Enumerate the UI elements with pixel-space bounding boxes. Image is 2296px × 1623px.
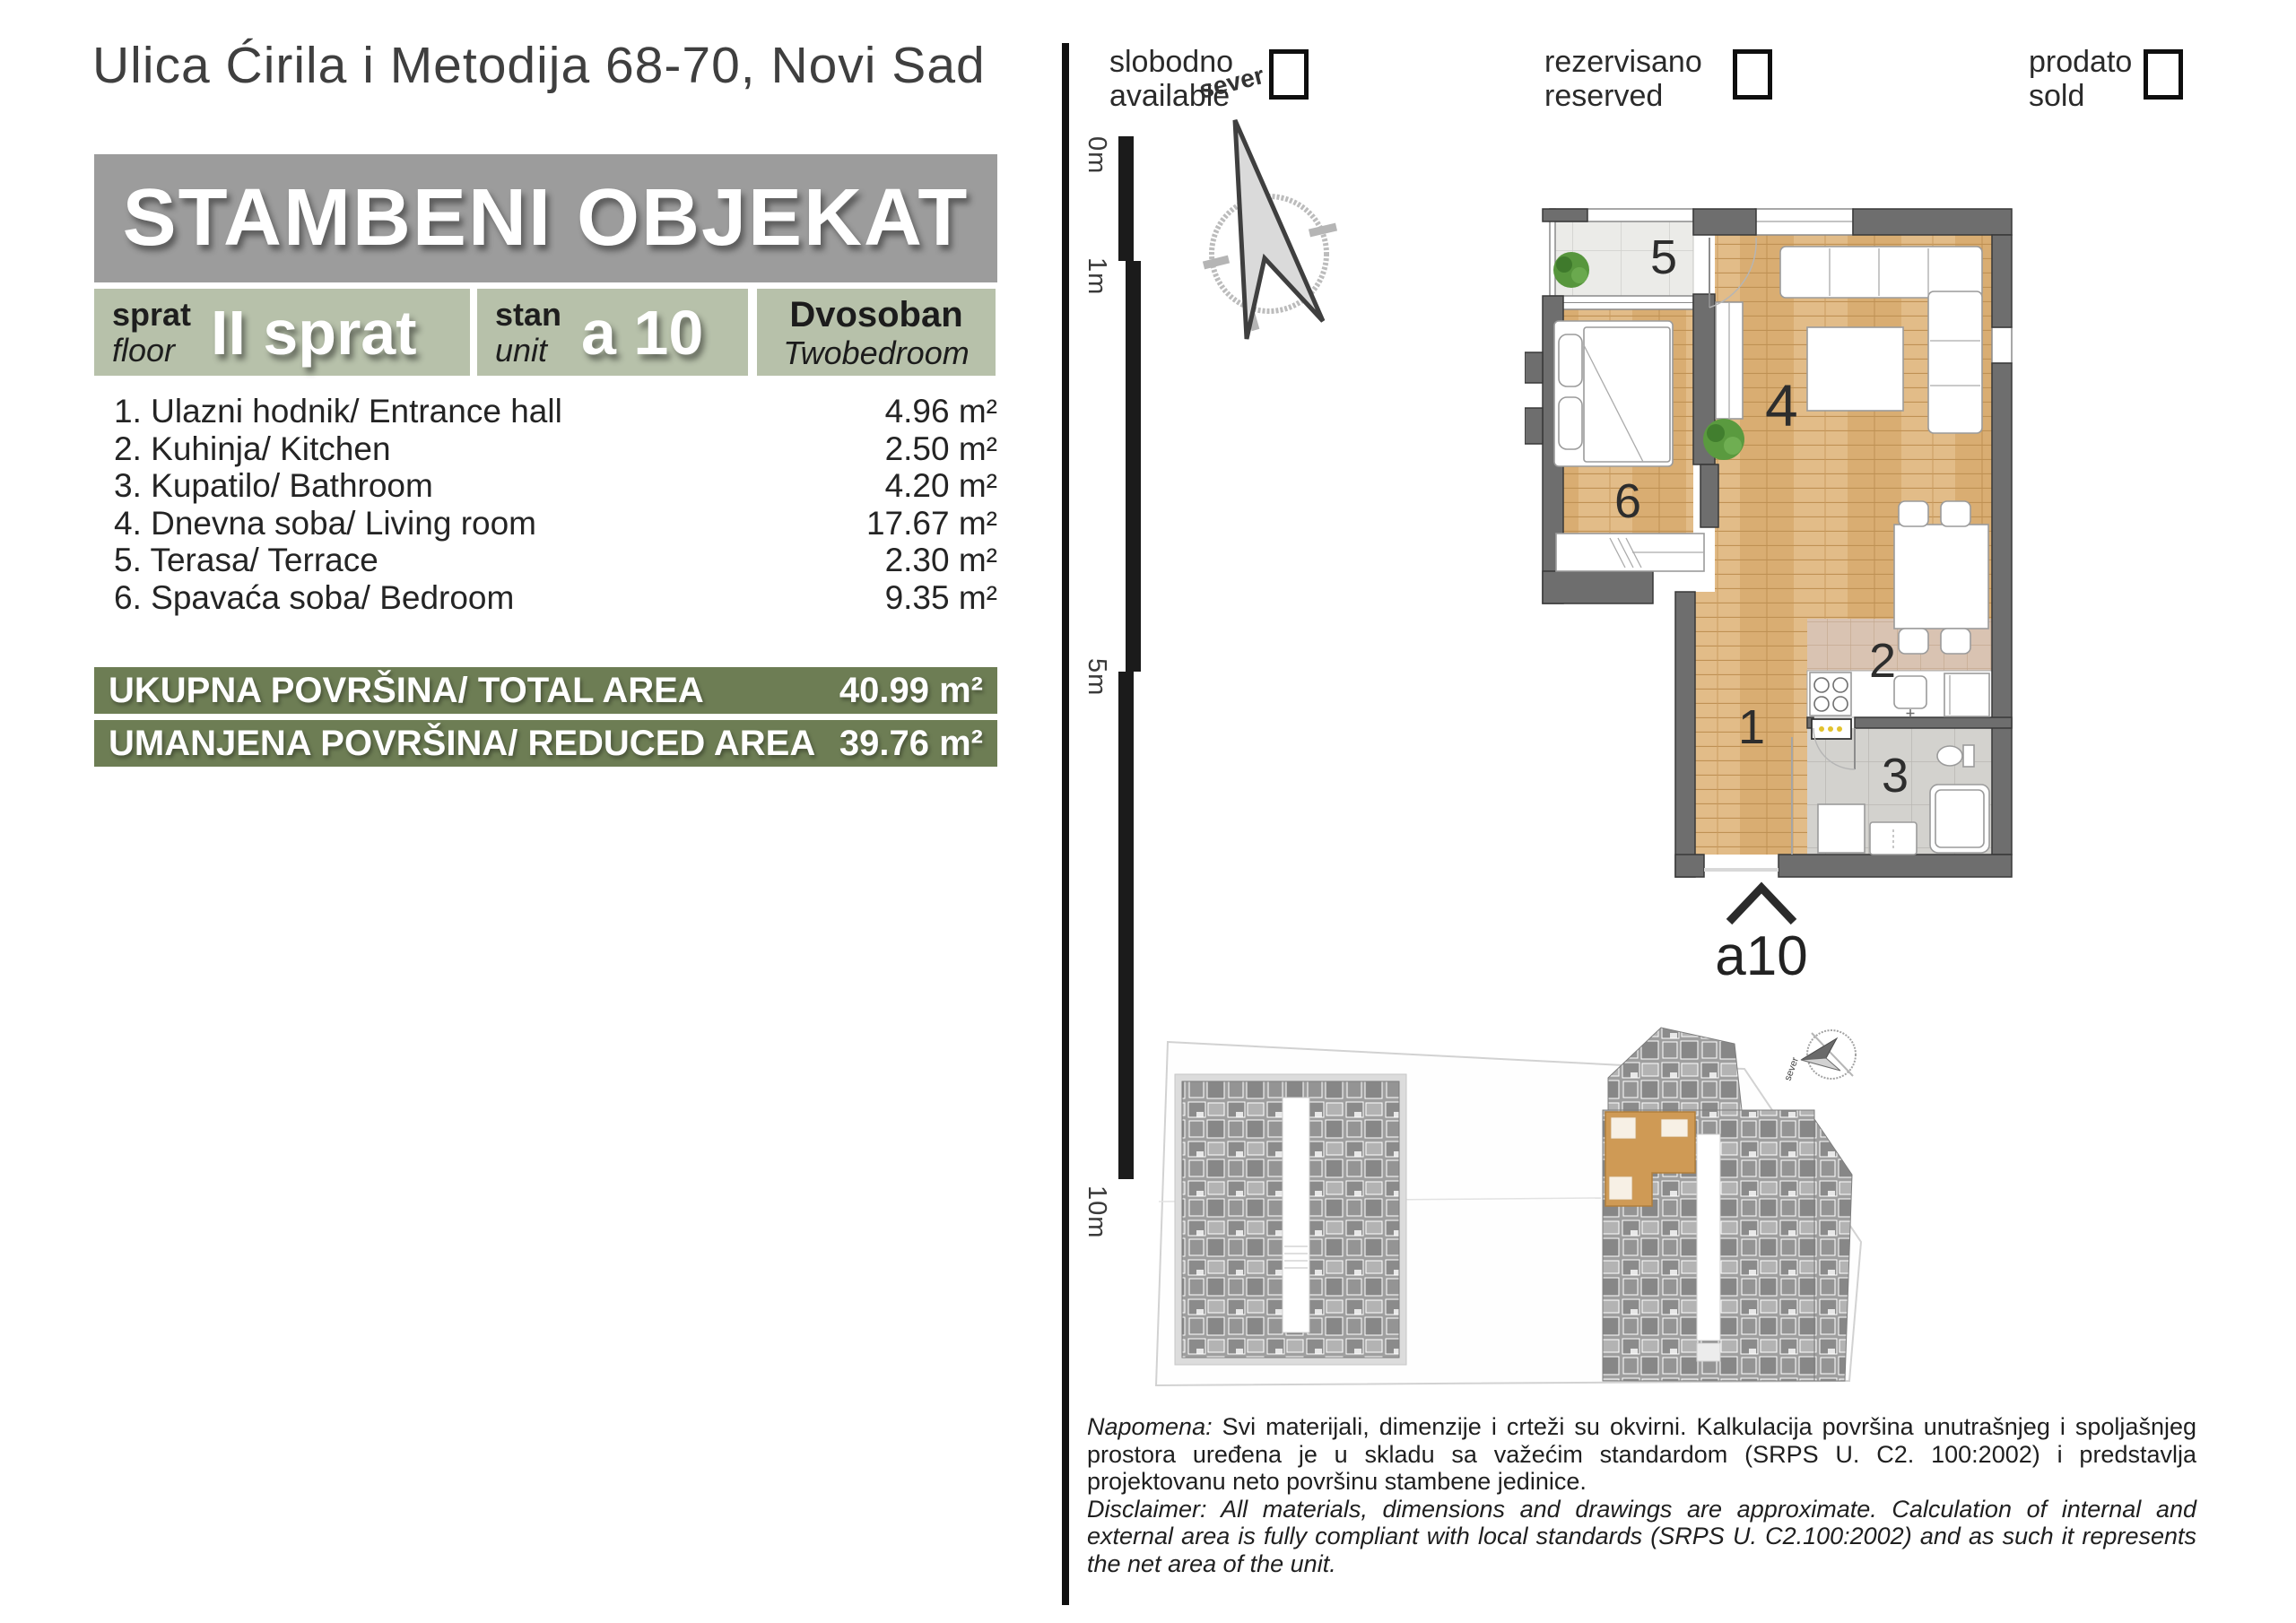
scale-label-1m: 1m [1082, 257, 1111, 295]
bathroom-sink [1870, 822, 1917, 855]
unit-label-sr: stan [495, 297, 561, 333]
room-row: 4. Dnevna soba/ Living room 17.67 m² [94, 505, 997, 542]
duvet [1584, 327, 1670, 462]
floor-label-sr: sprat [112, 297, 191, 333]
unit-info-box: stan unit a 10 [477, 289, 748, 376]
room-row: 1. Ulazni hodnik/ Entrance hall 4.96 m² [94, 393, 997, 430]
reduced-area-label: UMANJENA POVRŠINA/ REDUCED AREA [109, 724, 815, 764]
plant-icon [1553, 252, 1589, 288]
apartment-floor-plan: 5 6 4 1 2 3 a10 [1525, 202, 2027, 991]
chair [1941, 629, 1970, 654]
building-right-corridor [1697, 1134, 1720, 1341]
unit-entrance-label: a10 [1715, 925, 1807, 987]
scale-label-5m: 5m [1082, 658, 1111, 696]
room-list: 1. Ulazni hodnik/ Entrance hall 4.96 m² … [94, 393, 997, 616]
unit-value: a 10 [581, 297, 703, 369]
plant-icon [1703, 419, 1744, 460]
room-area: 9.35 m² [885, 579, 997, 617]
kitchen-sink [1894, 676, 1926, 708]
scale-bar-segment-1-5m [1126, 261, 1141, 672]
room-label-terrace: 5 [1650, 230, 1677, 284]
north-compass-icon: sever [1193, 70, 1354, 348]
brochure-page: Ulica Ćirila i Metodija 68-70, Novi Sad … [0, 0, 2296, 1623]
floor-label-en: floor [112, 333, 191, 369]
fridge [1944, 673, 1989, 716]
toilet-tank [1963, 745, 1974, 767]
coffee-table [1807, 327, 1903, 411]
building-banner-title: STAMBENI OBJEKAT [123, 172, 970, 265]
legend-sold-sr: prodato [2029, 45, 2132, 79]
type-sr: Dvosoban [789, 294, 962, 335]
reduced-area-value: 39.76 m² [839, 724, 983, 764]
scale-label-10m: 10m [1082, 1185, 1111, 1238]
room-name: 3. Kupatilo/ Bathroom [94, 467, 433, 505]
scale-label-0m: 0m [1082, 136, 1111, 174]
room-name: 2. Kuhinja/ Kitchen [94, 430, 391, 468]
room-name: 1. Ulazni hodnik/ Entrance hall [94, 393, 562, 430]
room-name: 5. Terasa/ Terrace [94, 542, 378, 579]
building-right-wing [1608, 1028, 1742, 1110]
toilet [1937, 746, 1962, 766]
room-row: 2. Kuhinja/ Kitchen 2.50 m² [94, 430, 997, 468]
legend-reserved-en: reserved [1544, 79, 1702, 113]
legend-reserved-sr: rezervisano [1544, 45, 1702, 79]
room-row: 6. Spavaća soba/ Bedroom 9.35 m² [94, 579, 997, 617]
room-area: 4.20 m² [885, 467, 997, 505]
room-label-bathroom: 3 [1882, 749, 1909, 803]
pillow [1559, 397, 1582, 449]
room-area: 2.50 m² [885, 430, 997, 468]
site-compass-label: sever [1783, 1055, 1802, 1082]
washing-machine [1818, 804, 1865, 853]
room-area: 17.67 m² [866, 505, 997, 542]
building-left-corridor [1283, 1098, 1309, 1332]
scale-bar-segment-5-10m [1118, 672, 1134, 1179]
vertical-divider [1062, 43, 1069, 1605]
legend-sold: prodato sold [2029, 45, 2132, 113]
reserved-checkbox [1733, 49, 1772, 100]
entrance-threshold [1704, 868, 1779, 872]
sold-checkbox [2144, 49, 2183, 100]
pillow [1559, 334, 1582, 386]
type-en: Twobedroom [783, 335, 969, 371]
room-label-bedroom: 6 [1614, 474, 1641, 528]
total-area-label: UKUPNA POVRŠINA/ TOTAL AREA [109, 671, 704, 711]
room-name: 4. Dnevna soba/ Living room [94, 505, 536, 542]
legend-sold-en: sold [2029, 79, 2132, 113]
sofa-vertical [1928, 291, 1982, 433]
chair [1941, 501, 1970, 526]
dining-table [1894, 525, 1988, 629]
room-area: 4.96 m² [885, 393, 997, 430]
room-row: 3. Kupatilo/ Bathroom 4.20 m² [94, 467, 997, 505]
legend-reserved: rezervisano reserved [1544, 45, 1702, 113]
disclaimer-serbian: Napomena: Svi materijali, dimenzije i cr… [1087, 1413, 2196, 1496]
chair [1899, 501, 1928, 526]
room-name: 6. Spavaća soba/ Bedroom [94, 579, 514, 617]
disclaimer-english: Disclaimer: All materials, dimensions an… [1087, 1496, 2196, 1578]
total-area-value: 40.99 m² [839, 671, 983, 711]
floor-value: II sprat [211, 297, 417, 369]
sofa-horizontal [1780, 247, 1982, 298]
page-title: Ulica Ćirila i Metodija 68-70, Novi Sad [92, 36, 986, 95]
compass-label: sever [1196, 70, 1267, 104]
room-label-living: 4 [1765, 372, 1798, 438]
right-wall-window [1992, 327, 2012, 363]
reduced-area-bar: UMANJENA POVRŠINA/ REDUCED AREA 39.76 m² [94, 720, 997, 767]
entrance-arrow-icon [1729, 888, 1794, 922]
unit-label-en: unit [495, 333, 561, 369]
room-label-entrance: 1 [1738, 700, 1765, 754]
building-right-east-strip [1814, 1119, 1852, 1381]
type-info-box: Dvosoban Twobedroom [757, 289, 996, 376]
chair [1899, 629, 1928, 654]
bathtub [1930, 785, 1989, 853]
disclaimer-text: Napomena: Svi materijali, dimenzije i cr… [1087, 1413, 2196, 1577]
site-compass-icon: sever [1783, 1030, 1856, 1082]
floor-info-box: sprat floor II sprat [94, 289, 470, 376]
room-row: 5. Terasa/ Terrace 2.30 m² [94, 542, 997, 579]
scale-bar-segment-0-1m [1118, 136, 1134, 261]
room-area: 2.30 m² [885, 542, 997, 579]
building-banner: STAMBENI OBJEKAT [94, 154, 997, 282]
room-label-kitchen: 2 [1869, 634, 1896, 688]
site-plan: sever [1148, 1022, 1874, 1399]
total-area-bar: UKUPNA POVRŠINA/ TOTAL AREA 40.99 m² [94, 667, 997, 714]
